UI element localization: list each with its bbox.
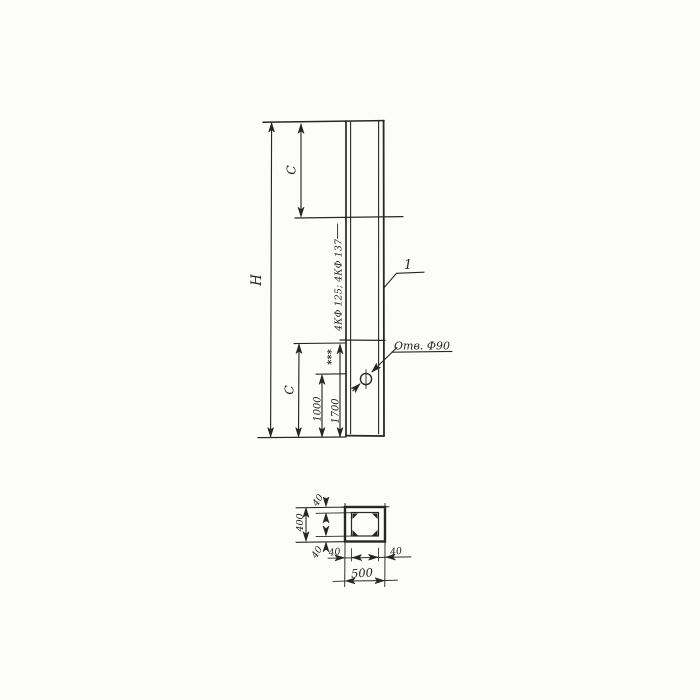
dim-label-40-top: 40 — [310, 492, 326, 509]
dim-label-c-top: C — [284, 165, 299, 175]
scanned-drawing-sheet: C H C 1000 1700 *** 4КФ 125; 4КФ 137 1 О… — [0, 0, 700, 700]
section-inner-square — [352, 513, 379, 537]
column-mark-label: 4КФ 125; 4КФ 137 — [333, 238, 344, 332]
ext-bottom-outer — [296, 542, 344, 543]
dim-label-40-right: 40 — [389, 546, 403, 558]
hole-leader-lower — [353, 384, 360, 391]
dim-label-40-bottom: 40 — [309, 544, 325, 561]
corner-bar-bottom-left — [353, 530, 359, 536]
corner-bar-top-right — [372, 514, 378, 520]
ext-top-inner — [316, 513, 352, 514]
dim-label-40-left: 40 — [327, 546, 341, 558]
dim-label-500: 500 — [351, 565, 374, 580]
ext-bottom-inner — [316, 536, 352, 537]
elevation-labels: C H C 1000 1700 *** 4КФ 125; 4КФ 137 1 О… — [249, 165, 450, 424]
callout-leader-line — [384, 272, 424, 287]
dim-line-h — [271, 123, 272, 436]
corner-bar-bottom-right — [372, 530, 378, 536]
technical-drawing-canvas: C H C 1000 1700 *** 4КФ 125; 4КФ 137 1 О… — [0, 0, 700, 700]
section-labels: 400 40 40 40 40 500 — [295, 492, 403, 580]
top-extension-line — [263, 121, 384, 123]
dim-label-1700: 1700 — [331, 399, 342, 424]
hole-diameter-label: Отв. Ф90 — [394, 340, 450, 353]
dim-line-c-bottom — [299, 345, 300, 437]
dim-label-400: 400 — [295, 513, 306, 532]
corner-bar-top-left — [353, 514, 359, 520]
bottom-extension-line — [258, 437, 346, 438]
joint-line-upper — [295, 217, 403, 218]
part-callout-number: 1 — [404, 258, 412, 273]
footnote-asterisks: *** — [326, 348, 337, 364]
dim-label-h: H — [249, 274, 265, 287]
dim-label-c-bottom: C — [282, 385, 297, 395]
dim-label-1000: 1000 — [313, 397, 324, 422]
extension-line-c-bottom — [294, 343, 346, 344]
